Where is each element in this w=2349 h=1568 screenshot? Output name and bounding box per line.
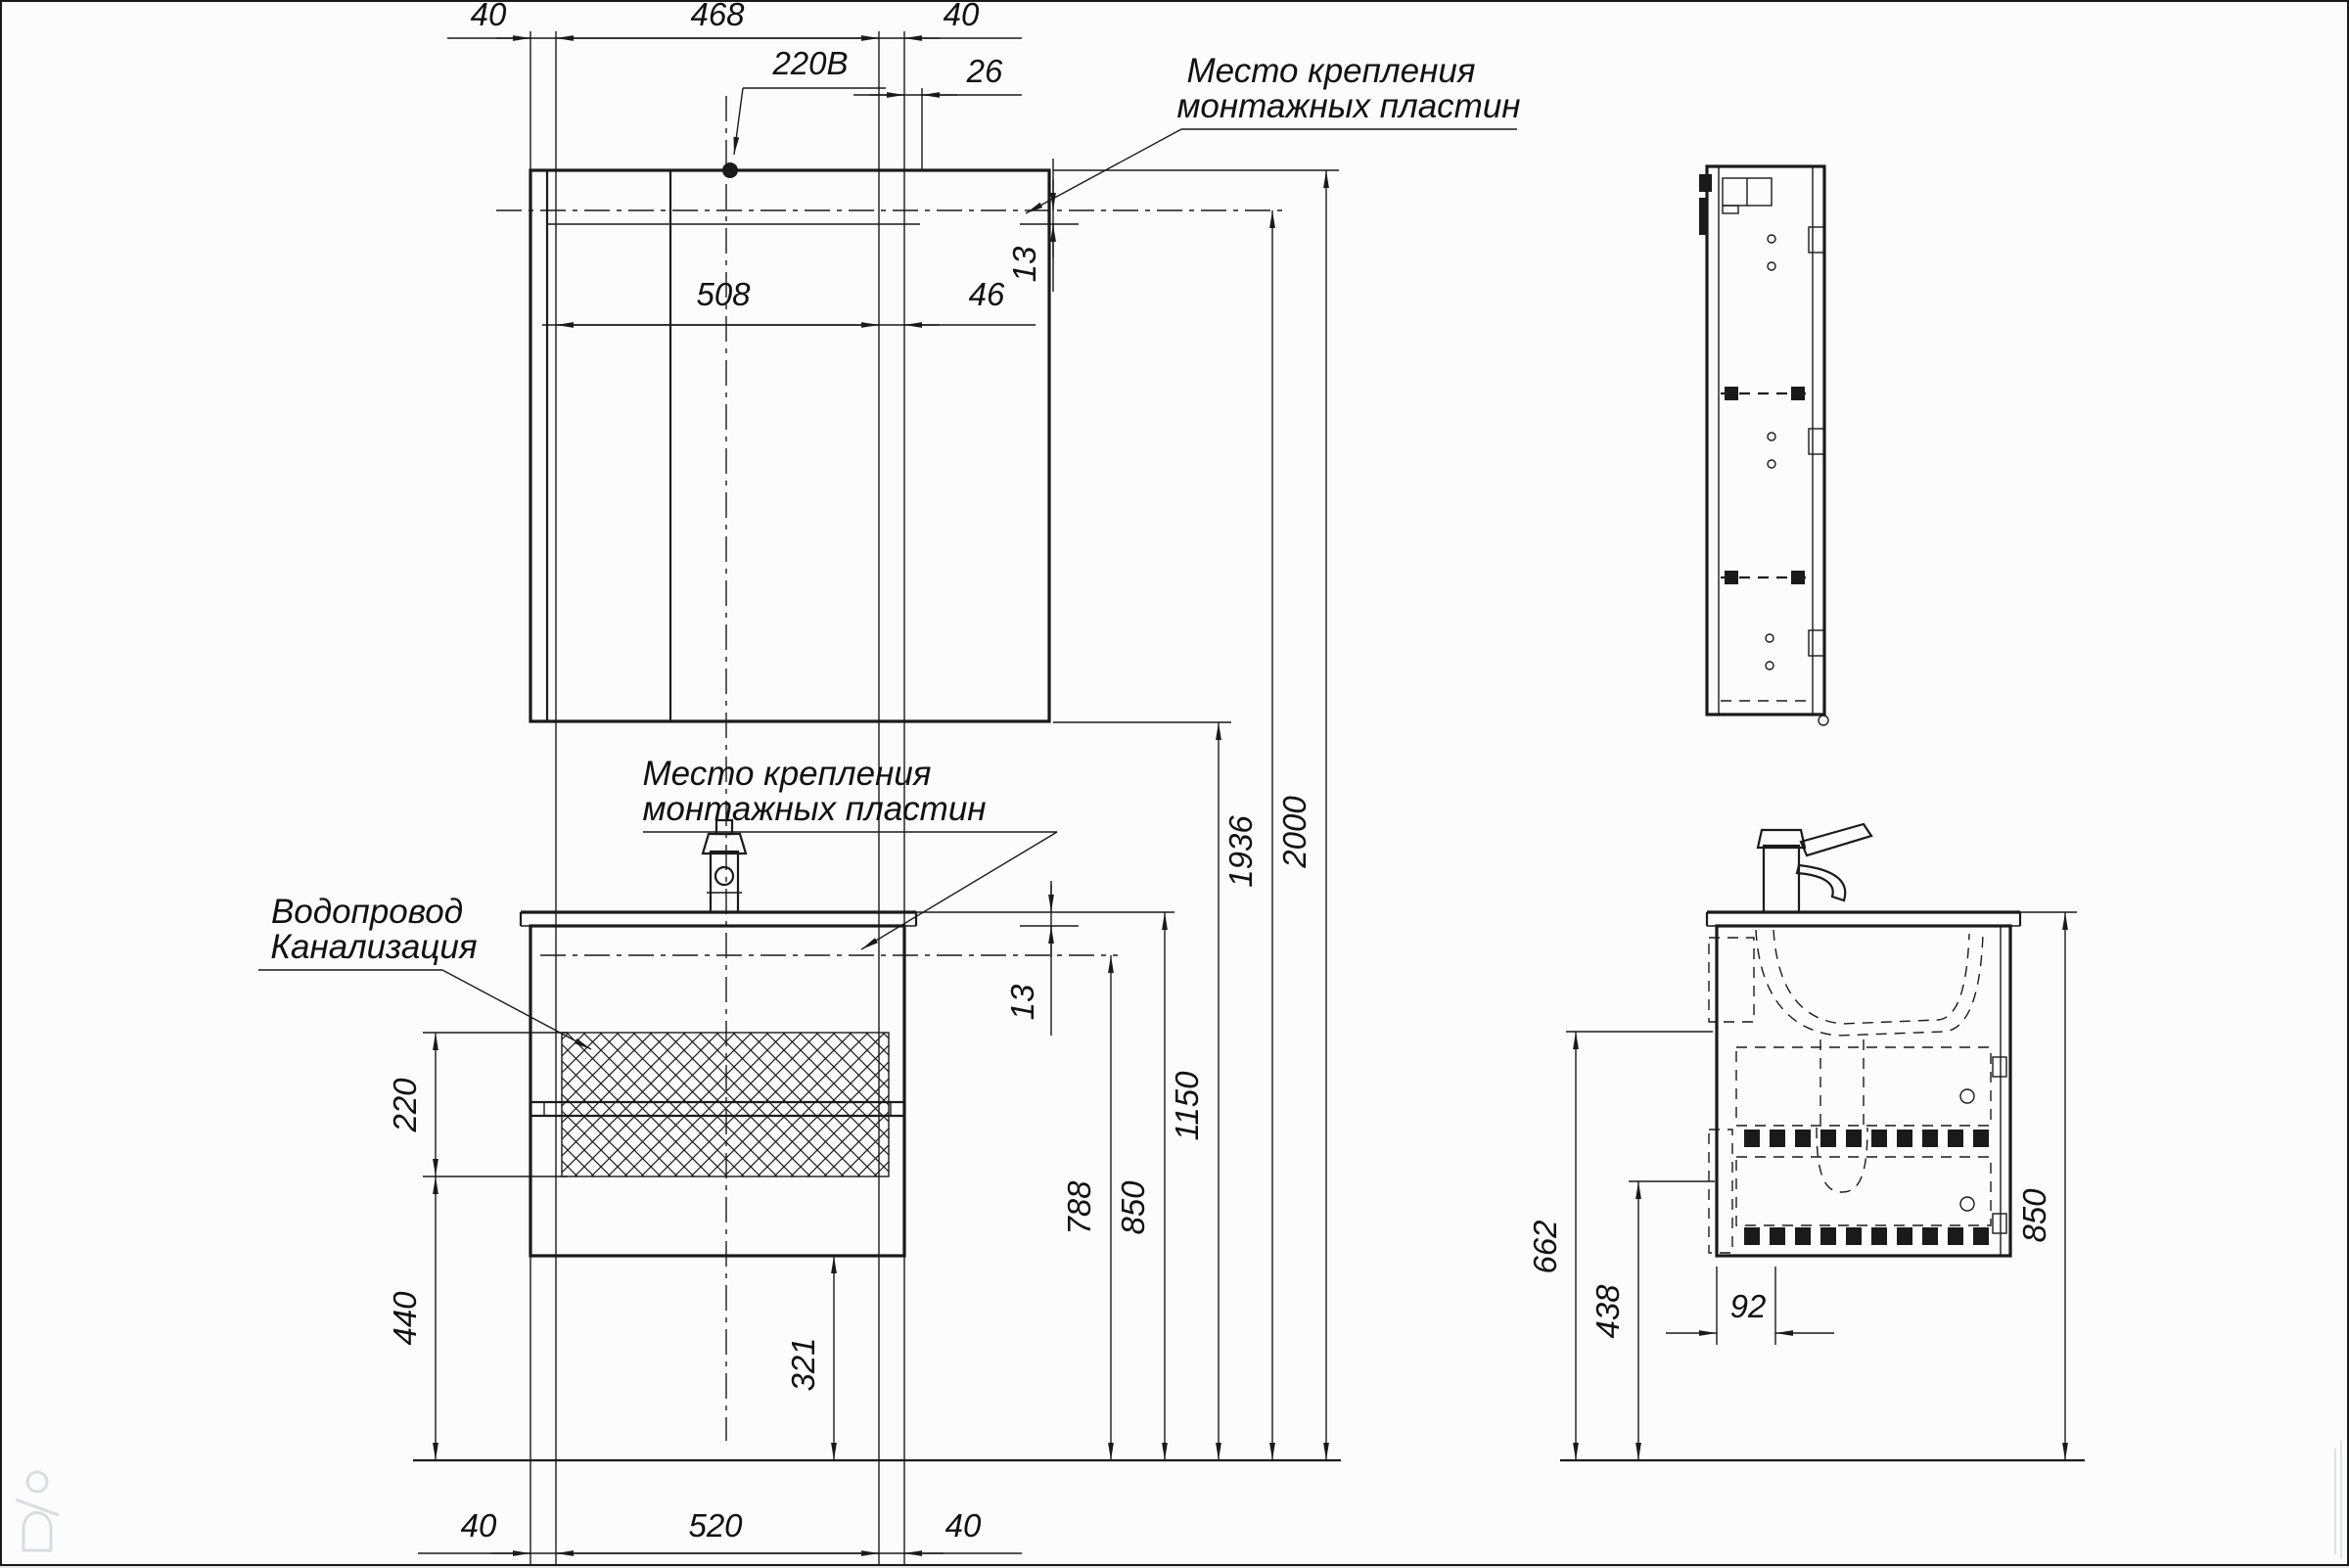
mirror-cabinet-front [496, 170, 1284, 721]
shelf-line-lower [1721, 571, 1813, 584]
dim-mirror-46: 46 [969, 276, 1005, 312]
dim-mirror-top-13: 13 [1006, 246, 1042, 282]
watermarks [16, 1441, 2341, 1558]
dimensions-side: 662 438 850 92 [1527, 912, 2077, 1460]
power-callout: 220В [722, 45, 886, 178]
watermark-logo [16, 1472, 59, 1550]
dim-bottom-520: 520 [688, 1507, 743, 1544]
dim-bottom-right-40: 40 [945, 1507, 982, 1544]
mounting-note-mid: Место крепления монтажных пластин [642, 755, 1057, 949]
vanity-front [521, 912, 1118, 1256]
dim-side-662: 662 [1527, 1220, 1563, 1273]
dim-bottom-left-40: 40 [461, 1507, 497, 1544]
side-view-mirror [1699, 166, 1828, 725]
dim-top-26: 26 [966, 53, 1003, 89]
mounting-note-top: Место крепления монтажных пластин [1026, 52, 1521, 213]
faucet-icon-front [703, 820, 746, 912]
mounting-note-mid-line1: Место крепления [642, 755, 931, 793]
vanity-body-side [1717, 926, 2010, 1256]
hinge-top [1699, 174, 1712, 192]
dim-top-468: 468 [690, 2, 745, 32]
watermark-vertical-text [2335, 1441, 2341, 1558]
mounting-note-top-line1: Место крепления [1186, 52, 1475, 90]
dim-left-220: 220 [387, 1078, 423, 1133]
utilities-hatch-region [562, 1033, 889, 1176]
dim-height-1150: 1150 [1169, 1071, 1205, 1141]
plumbing-note: Водопровод Канализация [258, 893, 591, 1049]
siphon-dashed [1817, 1039, 1867, 1192]
hinge-detail [1699, 198, 1707, 235]
power-label: 220В [771, 45, 848, 81]
washbasin-bowl-dashed [1756, 930, 1983, 1036]
dim-height-2000: 2000 [1276, 796, 1313, 869]
dim-side-438: 438 [1589, 1284, 1626, 1339]
side-view-vanity: 662 438 850 92 [1527, 824, 2085, 1460]
front-view: 220В Место крепления монтажных пластин М… [258, 2, 1521, 1564]
dim-height-788: 788 [1061, 1180, 1097, 1235]
shelf-line-upper [1721, 387, 1813, 400]
dim-side-850: 850 [2016, 1188, 2052, 1243]
mounting-note-mid-line2: монтажных пластин [642, 790, 986, 828]
mounting-note-top-line2: монтажных пластин [1176, 87, 1520, 125]
dim-vanity-13: 13 [1004, 984, 1040, 1020]
wall-clips [1809, 227, 1824, 656]
dim-left-440: 440 [387, 1291, 423, 1346]
technical-drawing-canvas: 220В Место крепления монтажных пластин М… [2, 2, 2349, 1568]
plumbing-note-line1: Водопровод [271, 893, 463, 931]
dim-floor-321: 321 [785, 1337, 821, 1391]
shelf-pin-holes [1766, 235, 1775, 669]
plumbing-note-line2: Канализация [270, 928, 477, 966]
power-point-dot [722, 162, 738, 178]
faucet-icon-side [1758, 824, 1871, 912]
front-lower-dashed [1709, 1130, 1732, 1253]
dim-height-850: 850 [1115, 1180, 1151, 1235]
dim-mirror-508: 508 [696, 276, 751, 312]
dim-side-92: 92 [1730, 1288, 1767, 1324]
lower-drawer-dashed [1736, 1157, 1991, 1225]
dim-height-1936: 1936 [1222, 815, 1259, 888]
dim-top-left-40: 40 [471, 2, 507, 32]
dim-top-right-40: 40 [944, 2, 980, 32]
installation-drawing-page: 220В Место крепления монтажных пластин М… [0, 0, 2349, 1566]
